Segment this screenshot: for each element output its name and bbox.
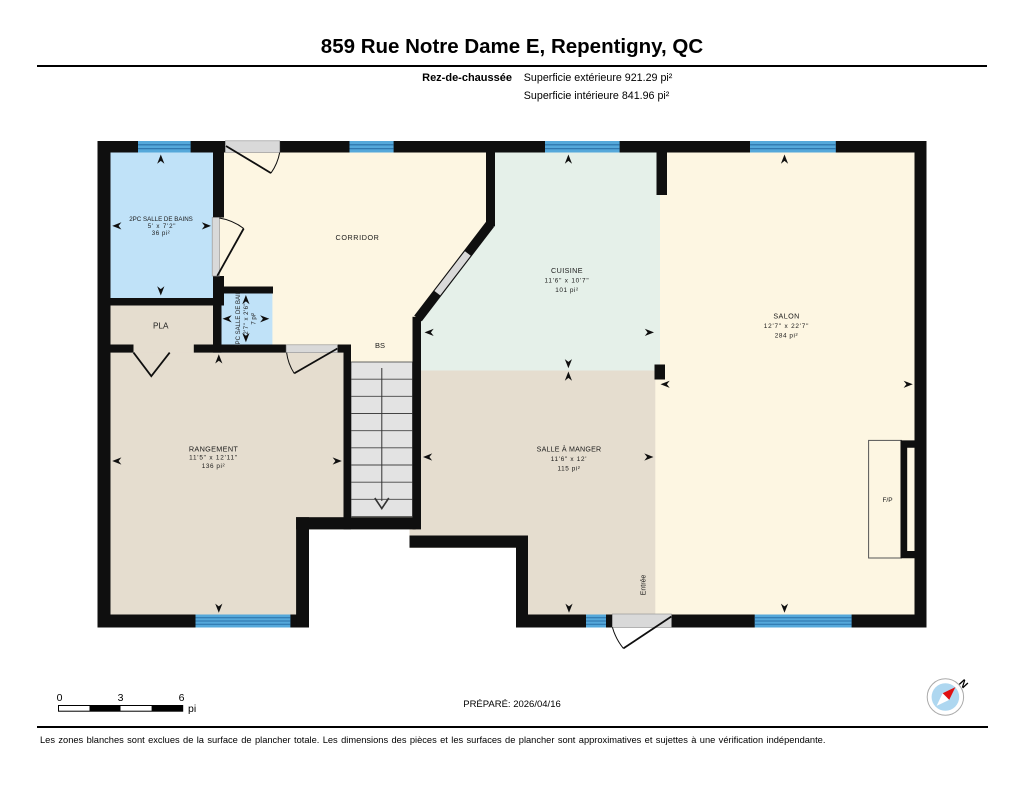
svg-text:CORRIDOR: CORRIDOR — [336, 233, 380, 242]
svg-text:115 pi²: 115 pi² — [558, 465, 581, 472]
svg-text:101 pi²: 101 pi² — [555, 287, 578, 294]
svg-text:11'6" x 12': 11'6" x 12' — [551, 456, 587, 463]
svg-text:CUISINE: CUISINE — [551, 266, 583, 275]
svg-text:2'7" x 2'6": 2'7" x 2'6" — [244, 303, 250, 335]
svg-text:12'7" x 22'7": 12'7" x 22'7" — [764, 323, 809, 330]
svg-text:PLA: PLA — [153, 322, 169, 331]
svg-text:BS: BS — [375, 341, 385, 350]
svg-text:Entrée: Entrée — [641, 575, 648, 596]
svg-text:SALON: SALON — [773, 312, 799, 321]
svg-text:11'5" x 12'11": 11'5" x 12'11" — [189, 455, 238, 462]
svg-text:136 pi²: 136 pi² — [202, 463, 225, 470]
svg-text:F/P: F/P — [882, 497, 892, 504]
svg-text:RANGEMENT: RANGEMENT — [189, 444, 239, 453]
svg-text:11'6" x 10'7": 11'6" x 10'7" — [545, 278, 590, 285]
svg-text:SALLE À MANGER: SALLE À MANGER — [537, 445, 602, 454]
svg-text:7 pi²: 7 pi² — [252, 313, 258, 325]
svg-text:284 pi²: 284 pi² — [775, 332, 798, 339]
svg-text:2PC SALLE DE BAIN: 2PC SALLE DE BAIN — [236, 290, 242, 348]
svg-text:36 pi²: 36 pi² — [152, 230, 170, 237]
svg-text:5' x 7'2": 5' x 7'2" — [148, 223, 177, 230]
svg-text:2PC SALLE DE BAINS: 2PC SALLE DE BAINS — [129, 216, 193, 223]
